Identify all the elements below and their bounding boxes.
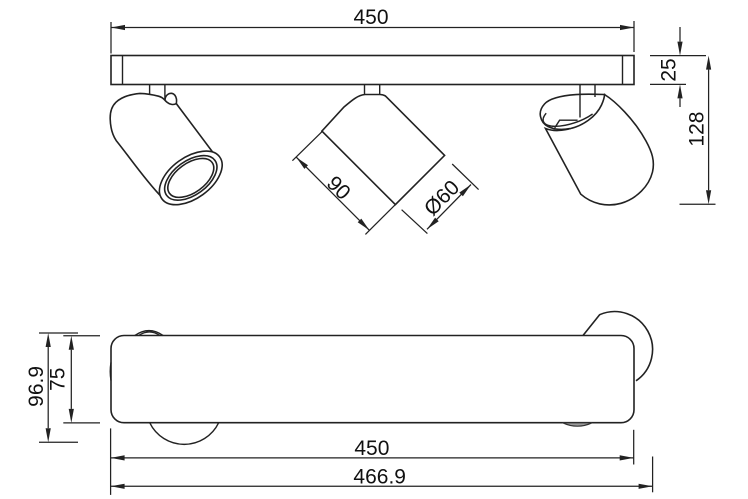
svg-text:450: 450 bbox=[353, 6, 388, 29]
svg-text:75: 75 bbox=[47, 368, 70, 391]
svg-text:96.9: 96.9 bbox=[25, 366, 48, 407]
svg-text:466.9: 466.9 bbox=[353, 466, 406, 489]
svg-text:25: 25 bbox=[658, 58, 681, 81]
svg-text:450: 450 bbox=[354, 437, 389, 460]
svg-text:128: 128 bbox=[686, 112, 709, 147]
